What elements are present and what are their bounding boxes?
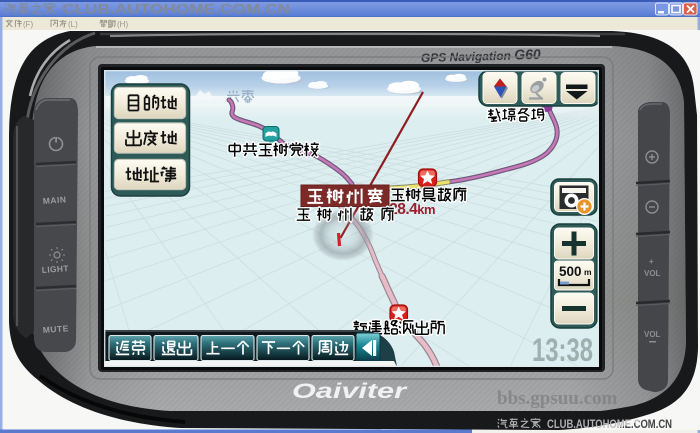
svg-text:(F): (F): [23, 20, 34, 29]
svg-text:13:38: 13:38: [532, 332, 593, 368]
svg-text:(L): (L): [68, 20, 78, 29]
svg-text:bbs.gpsuu.com: bbs.gpsuu.com: [497, 388, 618, 409]
svg-text:(H): (H): [117, 20, 128, 29]
svg-text:500: 500: [559, 264, 582, 279]
svg-text:m: m: [584, 267, 592, 277]
svg-text:+: +: [649, 257, 654, 266]
svg-text:CLUB.AUTOHOME.COM.CN: CLUB.AUTOHOME.COM.CN: [62, 2, 290, 17]
svg-text:Oaiviter: Oaiviter: [292, 380, 409, 403]
svg-text:VOL: VOL: [644, 269, 661, 278]
svg-text:VOL: VOL: [644, 330, 661, 339]
svg-text:LIGHT: LIGHT: [41, 263, 69, 275]
svg-text:MUTE: MUTE: [42, 323, 69, 335]
svg-text:MAIN: MAIN: [42, 194, 66, 206]
